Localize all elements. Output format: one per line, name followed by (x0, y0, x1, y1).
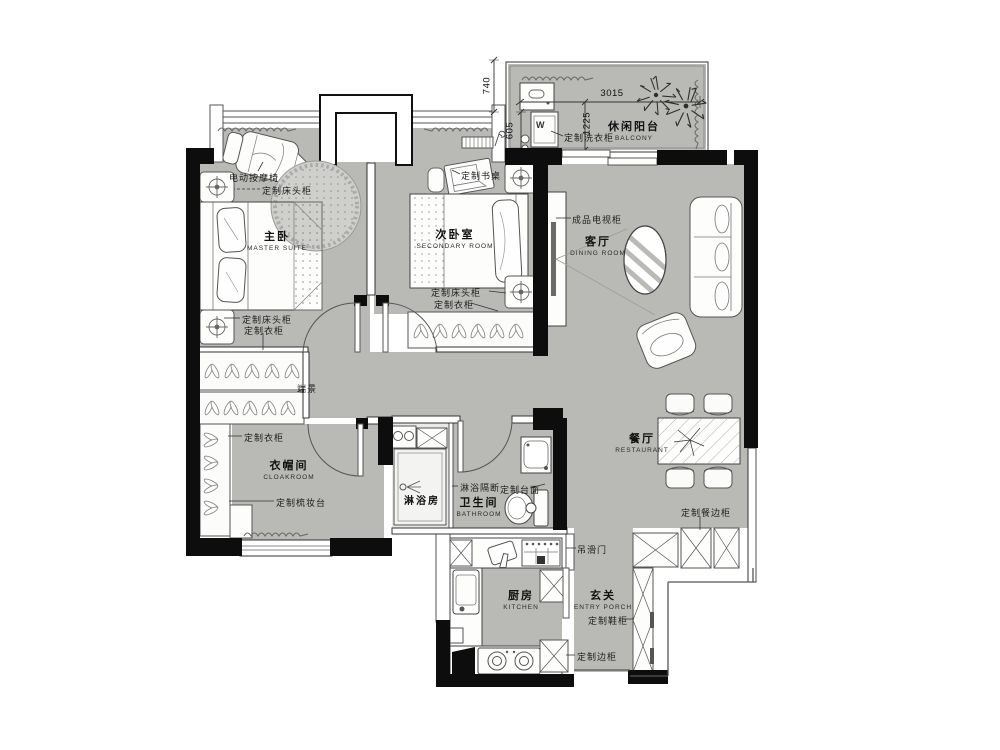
entry-cabinets (633, 528, 739, 672)
window-sill-radiator (462, 137, 493, 148)
faucet (460, 607, 465, 612)
label-tv-cabinet: 成品电视柜 (572, 213, 622, 226)
label-side-cabinet: 定制边柜 (577, 650, 617, 663)
tv-screen (551, 222, 556, 296)
wall-box (450, 628, 463, 643)
basin (405, 432, 414, 441)
label-massage-chair: 电动按摩椅 (229, 171, 279, 184)
balcony-sliding-panel (562, 150, 610, 157)
secondary-door-leaf (383, 303, 388, 352)
sofa-pillow (715, 205, 729, 233)
desk-stool (428, 168, 444, 192)
bathroom-door-leaf (458, 421, 463, 472)
master-window-glass (223, 111, 322, 123)
room-label-living: 客厅 DINING ROOM (570, 233, 626, 257)
bedroom-divider-wall (367, 163, 375, 295)
room-label-balcony: 休闲阳台 BALCONY (608, 118, 660, 142)
secondary-window-glass (412, 111, 492, 123)
west-wall (186, 148, 200, 554)
dim-1225: 1225 (582, 109, 593, 139)
label-shower-partition: 淋浴隔断 (460, 481, 500, 494)
pillow (492, 199, 522, 282)
cabinet-handle (650, 648, 654, 664)
label-desk: 定制书桌 (461, 169, 501, 182)
room-label-master: 主卧 MASTER SUITE (247, 228, 307, 252)
master-door-leaf (355, 303, 360, 352)
east-thin-wall (748, 448, 756, 582)
duct-shaft (320, 95, 412, 165)
label-dressing-table: 定制梳妆台 (276, 496, 326, 509)
stove (478, 648, 540, 674)
cabinet-handle (650, 612, 654, 628)
dim-605: 605 (505, 118, 516, 144)
label-sliding-door: 吊滑门 (577, 543, 607, 556)
sliding-door-panel (563, 568, 569, 618)
room-label-entry: 玄关 ENTRY PORCH (574, 587, 632, 611)
room-label-cloakroom: 衣帽间 CLOAKROOM (263, 457, 314, 481)
flush-button (526, 503, 536, 513)
sofa-pillow (715, 243, 729, 271)
label-countertop: 定制台面 (500, 483, 540, 496)
room-label-shower: 淋浴房 (404, 492, 440, 507)
balcony-sliding-panel (608, 158, 657, 165)
room-label-kitchen: 厨房 KITCHEN (503, 587, 539, 611)
label-wardrobe: 定制衣柜 (244, 324, 284, 337)
shower-partition-glass (449, 423, 453, 530)
room-name-cn: 主卧 (247, 228, 307, 244)
window-column (492, 105, 505, 162)
cloakroom-door-leaf (358, 424, 363, 476)
dim-3015: 3015 (592, 88, 632, 99)
sliding-door-track (566, 534, 574, 570)
label-bedside-cabinet: 定制床头柜 (262, 184, 312, 197)
dim-740: 740 (482, 73, 493, 99)
tv-wall (533, 160, 548, 356)
label-end-view: 端景 (297, 382, 317, 395)
label-wardrobe: 定制衣柜 (244, 431, 284, 444)
floor-plan-canvas: 主卧 MASTER SUITE 次卧室 SECONDARY ROOM 休闲阳台 … (0, 0, 1000, 750)
room-label-secondary: 次卧室 SECONDARY ROOM (417, 226, 494, 250)
hallway-floor (308, 352, 548, 418)
sofa-pillow (715, 282, 729, 310)
floor-plan-drawing (0, 0, 1000, 750)
bed-throw (294, 202, 322, 310)
room-label-bathroom: 卫生间 BATHROOM (456, 494, 501, 518)
label-sideboard: 定制餐边柜 (681, 506, 731, 519)
cloakroom-window (240, 540, 332, 556)
label-wardrobe: 定制衣柜 (434, 298, 474, 311)
room-name-en: MASTER SUITE (247, 245, 307, 252)
pillow (216, 257, 246, 303)
kitchen-west-wall (436, 534, 450, 622)
south-wall (436, 674, 574, 687)
floor-drain (521, 135, 529, 143)
washer-letter: W (536, 120, 545, 130)
label-shoe-cabinet: 定制鞋柜 (588, 614, 628, 627)
basin (394, 432, 403, 441)
room-label-dining: 餐厅 RESTAURANT (615, 430, 669, 454)
east-wall (744, 150, 758, 448)
